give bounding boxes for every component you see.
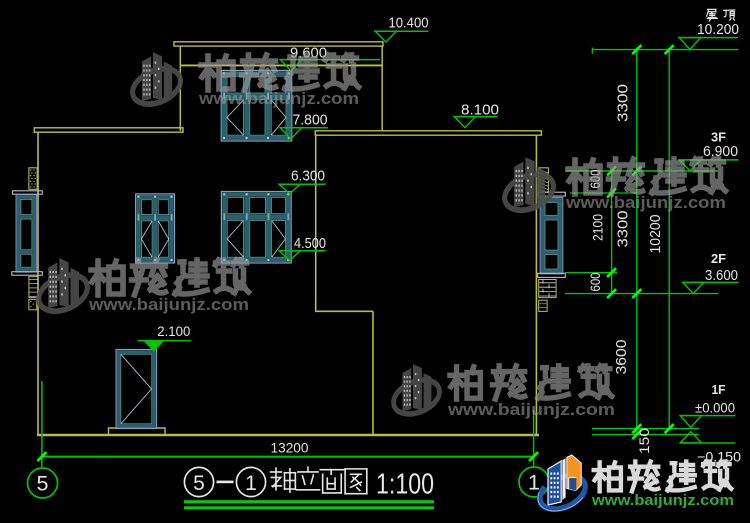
svg-text:3300: 3300: [615, 84, 632, 122]
svg-text:2100: 2100: [590, 214, 606, 241]
svg-text:1: 1: [245, 472, 257, 495]
svg-text:3600: 3600: [613, 340, 630, 375]
svg-text:8.100: 8.100: [461, 101, 499, 118]
svg-text:5: 5: [193, 472, 205, 495]
svg-text:600: 600: [587, 272, 603, 291]
svg-text:3300: 3300: [615, 211, 632, 248]
svg-text:±0.000: ±0.000: [695, 401, 735, 416]
svg-text:www.baijunjz.com: www.baijunjz.com: [198, 90, 359, 108]
svg-text:10.400: 10.400: [389, 16, 429, 32]
svg-text:6.300: 6.300: [291, 168, 325, 185]
svg-text:www.baijunjz.com: www.baijunjz.com: [88, 296, 249, 314]
svg-text:10.200: 10.200: [697, 22, 739, 38]
svg-text:1F: 1F: [712, 383, 726, 397]
svg-text:www.baijunjz.com: www.baijunjz.com: [591, 493, 734, 509]
svg-text:150: 150: [636, 428, 652, 454]
svg-text:4.500: 4.500: [294, 235, 326, 252]
svg-text:7.800: 7.800: [293, 112, 328, 129]
svg-text:5: 5: [37, 472, 49, 496]
svg-text:2F: 2F: [711, 252, 726, 266]
svg-text:3.600: 3.600: [705, 268, 738, 284]
svg-text:1:100: 1:100: [376, 469, 434, 501]
svg-text:www.baijunjz.com: www.baijunjz.com: [447, 401, 615, 419]
svg-text:1: 1: [528, 471, 540, 495]
svg-text:2.100: 2.100: [157, 324, 190, 339]
svg-text:3F: 3F: [711, 131, 726, 145]
svg-text:www.baijunjz.com: www.baijunjz.com: [565, 194, 726, 212]
svg-text:13200: 13200: [271, 441, 309, 456]
svg-text:10200: 10200: [647, 215, 664, 254]
